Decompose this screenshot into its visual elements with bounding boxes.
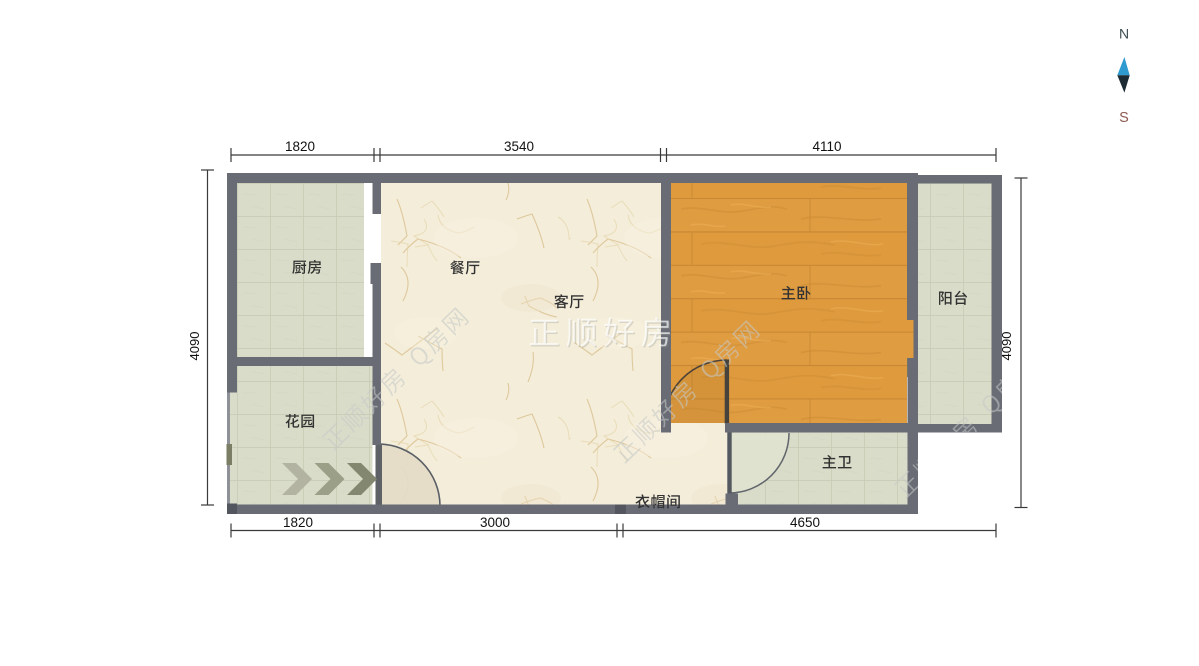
svg-text:N: N xyxy=(1119,26,1129,42)
svg-text:1820: 1820 xyxy=(285,139,315,154)
svg-text:4090: 4090 xyxy=(187,332,202,361)
svg-text:4650: 4650 xyxy=(790,515,820,530)
svg-text:4110: 4110 xyxy=(812,139,841,154)
svg-text:S: S xyxy=(1119,110,1129,126)
svg-text:4090: 4090 xyxy=(999,332,1014,361)
svg-text:3540: 3540 xyxy=(504,139,534,154)
svg-text:1820: 1820 xyxy=(283,515,313,530)
svg-text:3000: 3000 xyxy=(480,515,510,530)
